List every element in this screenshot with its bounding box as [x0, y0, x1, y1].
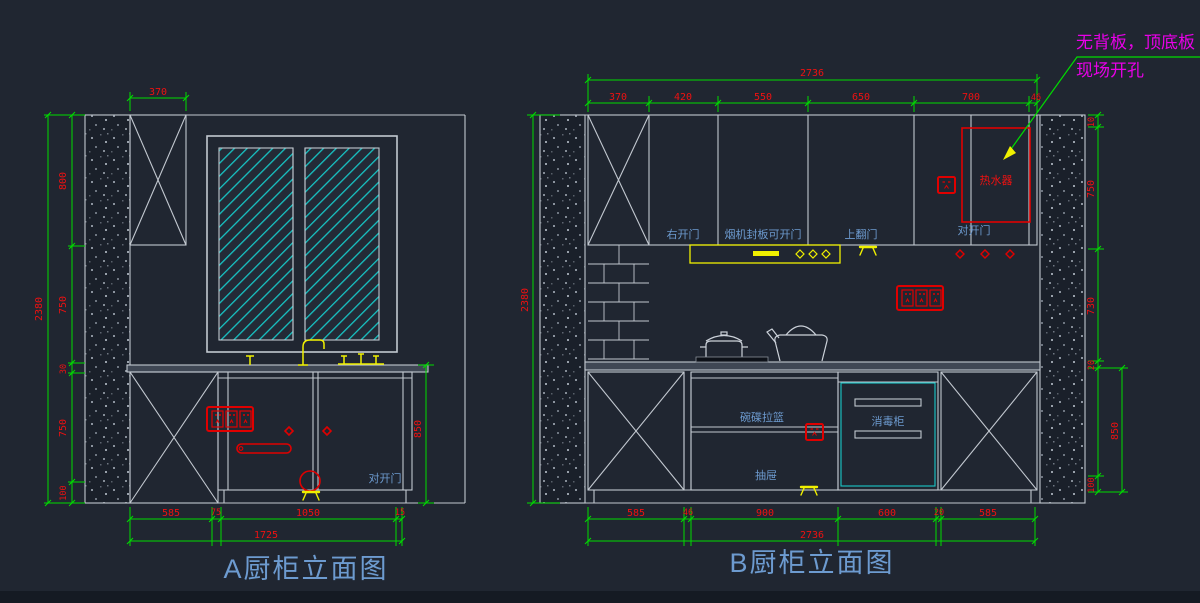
door-hardware-a [237, 427, 331, 491]
dim-a-b75: 75 [211, 508, 221, 518]
cad-model-space: 370 2380 800 750 30 750 100 850 585 75 1… [0, 0, 1200, 603]
base-x-panel-b-left [588, 372, 684, 490]
dim-b-b600: 600 [878, 508, 896, 519]
kick-b [588, 490, 1037, 503]
cad-drawing: 370 2380 800 750 30 750 100 850 585 75 1… [0, 0, 1200, 603]
dimensions-b [527, 74, 1128, 546]
dim-a-b1050: 1050 [296, 508, 320, 519]
dim-b-t420: 420 [674, 92, 692, 103]
cooktop-icon [696, 357, 768, 362]
countertop-b [585, 362, 1040, 370]
dim-a-base-height: 850 [413, 420, 424, 438]
label-dish-basket: 碗碟拉篮 [740, 410, 784, 424]
hood-button-icon [822, 250, 830, 258]
dim-a-b585: 585 [162, 508, 180, 519]
dim-a-seg-800: 800 [58, 172, 69, 190]
label-flip-door: 上翻门 [845, 227, 878, 241]
dim-b-b585: 585 [627, 508, 645, 519]
door-knob-icon [1006, 250, 1014, 258]
dim-b-r20: 20 [1087, 360, 1097, 370]
tall-cabinet-a [130, 115, 186, 245]
open-shelving-b [588, 245, 649, 359]
hinge-icon [860, 247, 876, 255]
hinge-icon [303, 492, 319, 500]
label-hood-panel: 烟机封板可开门 [725, 227, 802, 241]
dim-b-r10: 10 [1087, 117, 1097, 127]
title-a: A厨柜立面图 [223, 554, 388, 584]
dim-a-overall-height: 2380 [34, 297, 45, 321]
note-line-1: 无背板，顶底板 [1076, 33, 1195, 52]
range-hood-panel [690, 245, 840, 263]
wall-section-b-right [1040, 115, 1085, 503]
label-sterilizer: 消毒柜 [872, 414, 905, 428]
dim-b-t700: 700 [962, 92, 980, 103]
bottom-band [0, 591, 1200, 603]
note-line-2: 现场开孔 [1076, 61, 1144, 80]
dim-b-r100: 100 [1087, 477, 1097, 492]
label-double-door-top: 对开门 [958, 223, 991, 237]
drawing-b-structure [540, 115, 1085, 503]
wall-section-a [85, 115, 130, 503]
door-knob-icon [323, 427, 331, 435]
dim-b-b900: 900 [756, 508, 774, 519]
dim-b-r850: 850 [1110, 422, 1121, 440]
door-knob-icon [956, 250, 964, 258]
dim-b-r750: 750 [1086, 180, 1097, 198]
dim-a-overall-width: 1725 [254, 530, 278, 541]
label-right-door: 右开门 [667, 227, 700, 241]
leader-arrowhead-icon [1003, 146, 1016, 160]
dim-a-top: 370 [149, 87, 167, 98]
dim-a-seg-750b: 750 [58, 419, 69, 437]
drawing-b: 2736 370 420 550 650 700 46 右开门 烟机封板可开门 … [520, 57, 1200, 578]
drawing-a: 370 2380 800 750 30 750 100 850 585 75 1… [34, 87, 465, 584]
upper-door-knobs-b [956, 250, 1014, 258]
countertop-a [127, 365, 428, 372]
dim-b-t370: 370 [609, 92, 627, 103]
label-a-double-door: 对开门 [369, 471, 402, 485]
drawer-handle-icon [237, 444, 291, 453]
hood-button-icon [796, 250, 804, 258]
dim-b-b46: 46 [683, 508, 693, 518]
dim-a-b15: 15 [395, 508, 405, 518]
socket-outlet-icon [938, 177, 955, 193]
socket-outlet-3gang-icon [207, 407, 253, 431]
filler-strip-b [684, 372, 691, 490]
door-knob-icon [285, 427, 293, 435]
hood-button-icon [809, 250, 817, 258]
hinge-icon [801, 487, 817, 495]
title-b: B厨柜立面图 [729, 548, 894, 578]
dim-b-overall-bottom: 2736 [800, 530, 824, 541]
label-drawer: 抽屉 [755, 468, 777, 482]
window-a [207, 136, 397, 352]
dim-a-seg-30: 30 [59, 364, 69, 374]
dim-b-t46: 46 [1031, 93, 1041, 103]
label-water-heater: 热水器 [980, 174, 1013, 187]
sterilizer-section-b [838, 372, 938, 490]
dim-b-t650: 650 [852, 92, 870, 103]
base-x-panel-b-right [941, 372, 1037, 490]
dim-a-seg-750: 750 [58, 296, 69, 314]
dim-b-b585r: 585 [979, 508, 997, 519]
dim-b-t550: 550 [754, 92, 772, 103]
socket-outlet-3gang-icon [897, 286, 943, 310]
wall-section-b-left [540, 115, 585, 503]
dim-b-r730: 730 [1086, 297, 1097, 315]
dim-a-seg-100: 100 [59, 485, 69, 500]
pipe-hole-icon [300, 471, 320, 491]
kettle-icon [767, 326, 827, 361]
dim-b-overall-top: 2736 [800, 68, 824, 79]
dim-b-overall-height: 2380 [520, 288, 531, 312]
dim-b-b20: 20 [934, 508, 944, 518]
base-x-panel-a [130, 372, 218, 503]
door-knob-icon [981, 250, 989, 258]
